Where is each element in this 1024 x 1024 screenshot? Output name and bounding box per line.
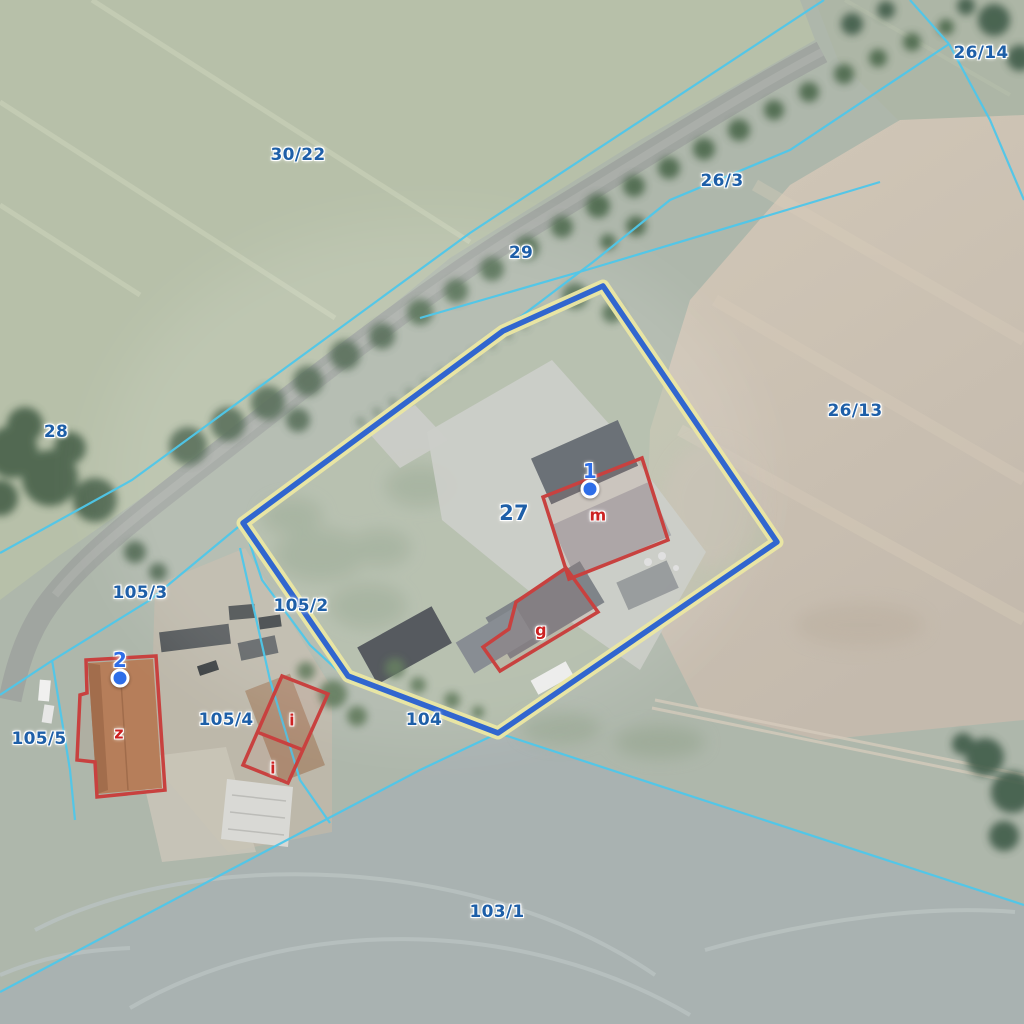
aerial-photo (0, 0, 1024, 1024)
haze-glare (100, 220, 760, 740)
map-canvas[interactable]: 30/2226/1426/3292826/1327105/3105/2105/4… (0, 0, 1024, 1024)
